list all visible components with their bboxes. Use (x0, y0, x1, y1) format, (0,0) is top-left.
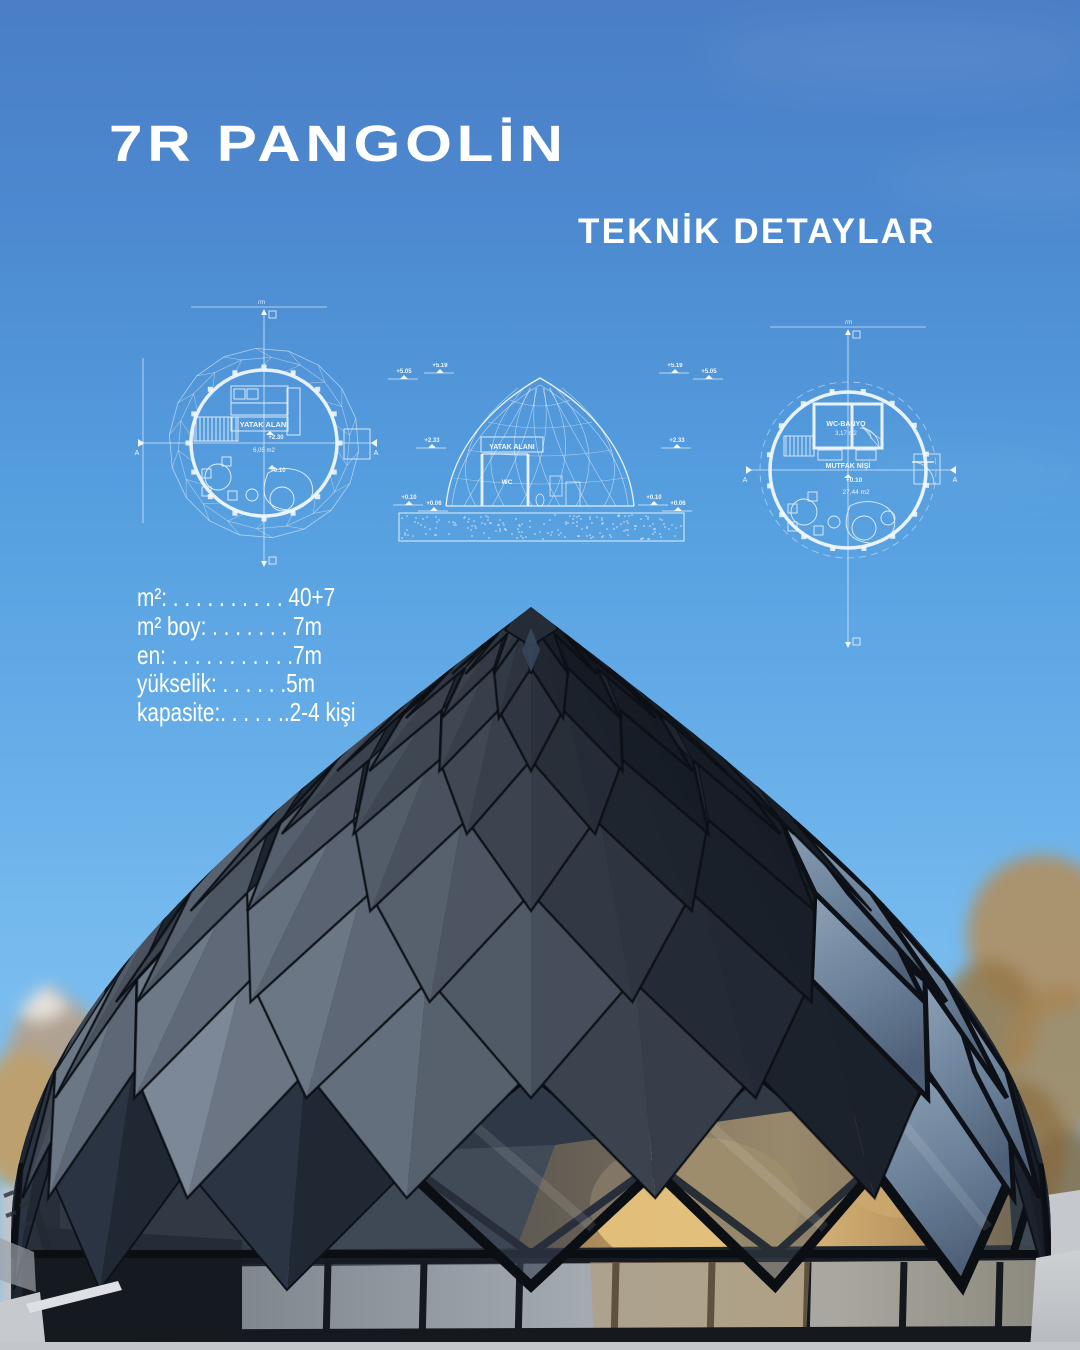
svg-text:A: A (743, 477, 748, 484)
svg-text:+0.10: +0.10 (401, 495, 417, 501)
svg-text:MUTFAK NİŞİ: MUTFAK NİŞİ (826, 462, 871, 470)
svg-text:6,05 m2: 6,05 m2 (253, 448, 275, 454)
svg-text:7m: 7m (844, 320, 852, 326)
svg-text:YATAK ALANI: YATAK ALANI (240, 420, 289, 429)
svg-text:A: A (374, 450, 379, 457)
svg-text:+2.33: +2.33 (669, 438, 685, 444)
svg-text:7m: 7m (257, 300, 265, 306)
svg-text:+0.10: +0.10 (846, 477, 863, 484)
svg-text:+0.10: +0.10 (646, 495, 662, 501)
svg-text:+5.19: +5.19 (667, 363, 683, 369)
svg-text:+2.33: +2.33 (424, 438, 440, 444)
svg-text:YATAK ALANI: YATAK ALANI (489, 444, 535, 451)
svg-text:+2.30: +2.30 (268, 435, 284, 441)
svg-text:A: A (953, 477, 958, 484)
svg-text:3,17 m2: 3,17 m2 (835, 431, 857, 437)
svg-text:+0.06: +0.06 (670, 501, 686, 507)
svg-text:+0.06: +0.06 (426, 501, 442, 507)
svg-text:WC-BANYO: WC-BANYO (826, 421, 866, 428)
svg-text:+5.05: +5.05 (396, 369, 412, 375)
svg-text:+5.19: +5.19 (432, 363, 448, 369)
svg-text:+5.05: +5.05 (701, 369, 717, 375)
svg-text:WC: WC (502, 479, 513, 486)
svg-text:A: A (135, 450, 140, 457)
svg-text:27,44 m2: 27,44 m2 (842, 489, 869, 496)
